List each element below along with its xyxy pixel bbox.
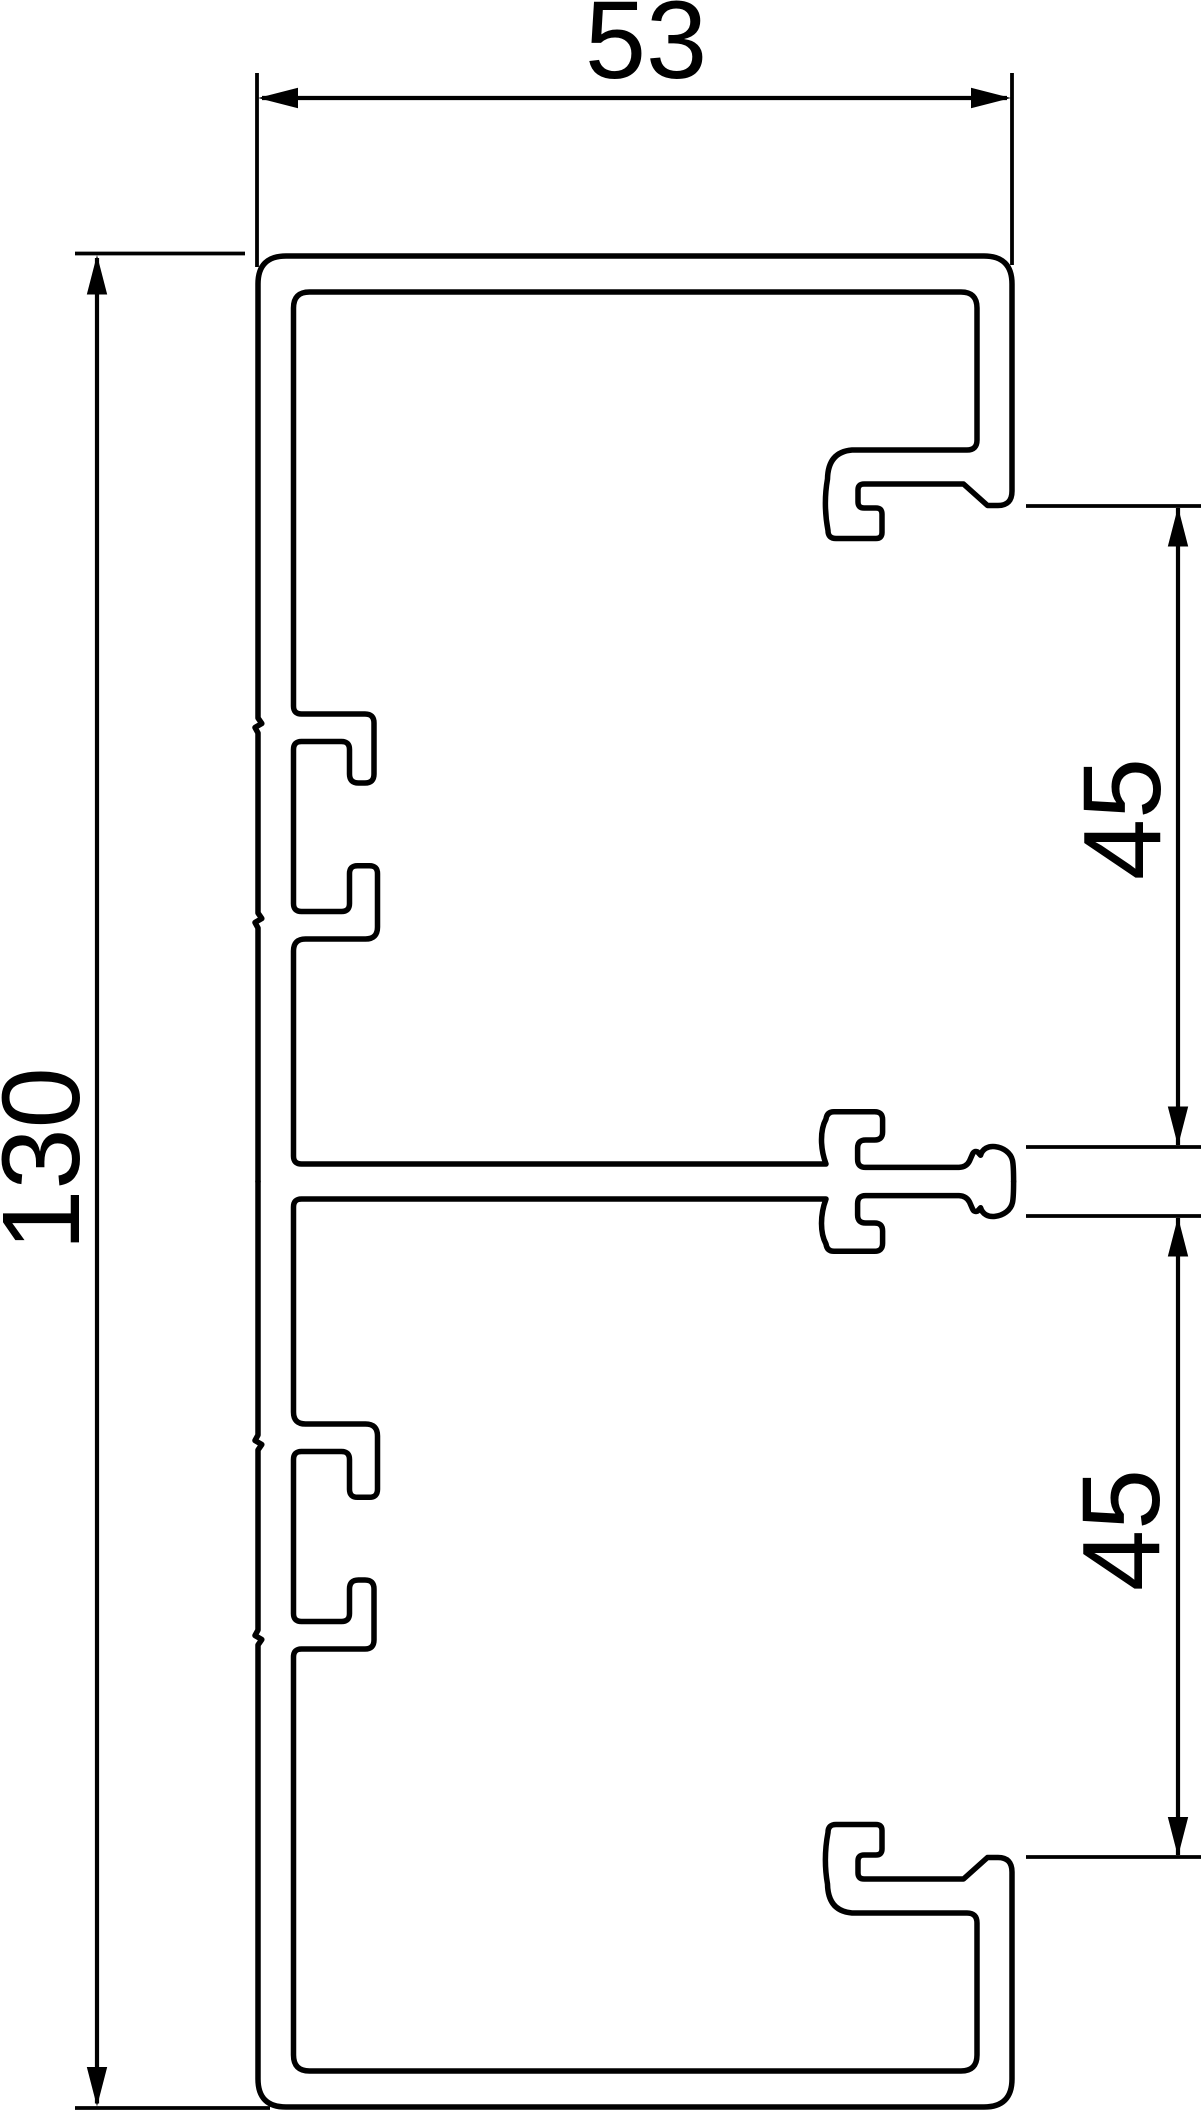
svg-text:130: 130 [0, 1067, 103, 1251]
svg-text:45: 45 [1060, 1469, 1183, 1591]
svg-text:53: 53 [585, 0, 707, 102]
svg-text:45: 45 [1061, 758, 1184, 880]
